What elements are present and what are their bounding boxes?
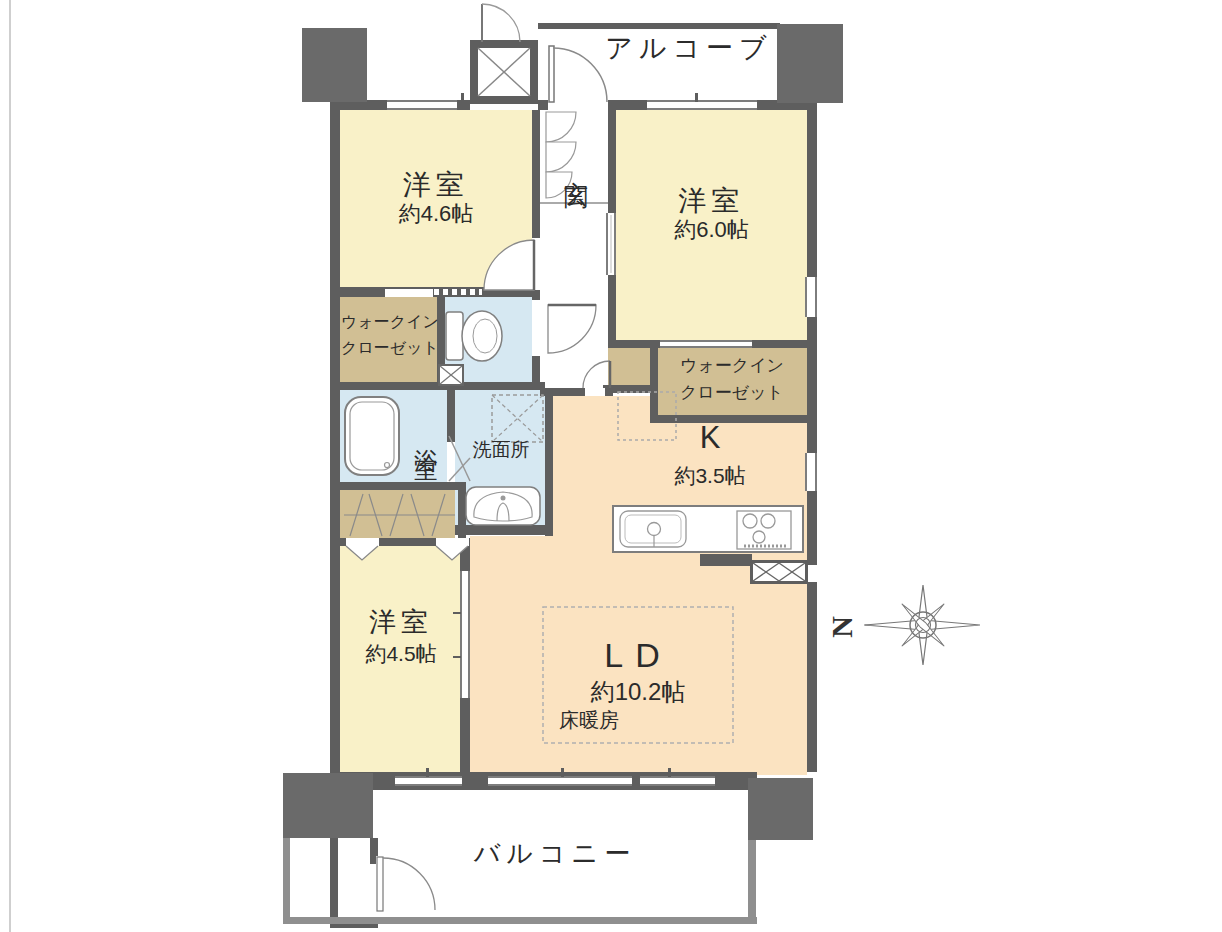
window-tick (426, 768, 429, 777)
wic-right-label: ウォークインクローゼット (658, 352, 806, 406)
room45-label: 洋室 (340, 604, 462, 640)
room45-size: 約4.5帖 (340, 640, 462, 668)
wall (330, 838, 338, 928)
window (395, 776, 462, 786)
balcony-rail (283, 838, 290, 924)
door-opening (436, 538, 469, 546)
balcony-label: バルコニー (462, 836, 648, 871)
wall (340, 482, 462, 490)
window (640, 776, 715, 786)
wic-left-label: ウォークインクローゼット (341, 309, 437, 362)
window (387, 100, 457, 110)
wall (807, 110, 817, 565)
room60-size: 約6.0帖 (620, 215, 803, 245)
window (488, 776, 632, 786)
window (647, 100, 757, 110)
door-opening (376, 856, 384, 912)
wall (807, 582, 817, 772)
wic-right-line1: ウォークイン (658, 352, 806, 379)
balcony-rail (283, 917, 757, 924)
door-opening (532, 300, 540, 356)
wic-left-line1: ウォークイン (341, 309, 437, 335)
window-tick (668, 768, 671, 777)
door-opening (346, 538, 379, 546)
door-opening (385, 289, 433, 297)
living-dining-left (470, 536, 553, 775)
wall (458, 482, 466, 538)
wall (330, 287, 537, 297)
ld-label: LD (553, 636, 723, 675)
kitchen-size: 約3.5帖 (645, 462, 775, 490)
pillar (283, 773, 373, 838)
wall (538, 23, 780, 29)
pipe-space-kitchen (750, 560, 808, 584)
wic-right-line2: クローゼット (658, 379, 806, 406)
alcove-label: アルコーブ (596, 30, 782, 66)
room46-size: 約4.6帖 (350, 199, 522, 229)
wall (447, 390, 455, 442)
window (660, 340, 752, 348)
image-left-border (9, 0, 11, 932)
pillar (302, 28, 367, 102)
floor-heating-label: 床暖房 (544, 707, 634, 734)
door-opening (585, 388, 605, 396)
compass-north-label: N (825, 616, 858, 638)
entrance-label: 玄関 (560, 122, 592, 212)
hall-ld-door (583, 361, 610, 388)
closet-room45 (340, 490, 455, 538)
toilet-door (548, 305, 596, 353)
wic-left-line2: クローゼット (341, 335, 437, 361)
window (606, 213, 616, 275)
door-opening (548, 100, 608, 110)
pillar (748, 778, 813, 840)
window-tick (695, 93, 698, 102)
window-tick (561, 768, 564, 777)
kitchen-label: K (645, 420, 775, 456)
ld-size: 約10.2帖 (553, 676, 723, 708)
washroom-label: 洗面所 (455, 437, 547, 463)
window (805, 453, 817, 491)
wall (540, 388, 588, 396)
wall (455, 525, 553, 535)
window-tick (461, 93, 464, 102)
pipe-space-small (438, 364, 464, 386)
wall (650, 348, 658, 415)
wall (700, 554, 752, 566)
balcony-door (377, 857, 435, 911)
wall (330, 110, 340, 775)
compass-rose-icon: N (825, 583, 980, 668)
pillar (777, 24, 843, 103)
floor-plan: アルコーブ 玄関 洋室 約4.6帖 洋室 約6.0帖 ウォークインクローゼット … (0, 0, 1222, 932)
bathroom-label: 浴室 (410, 392, 442, 482)
wall (460, 698, 470, 775)
door-opening (532, 238, 540, 290)
wall (545, 390, 553, 536)
balcony-rail (748, 840, 756, 924)
meter-box-inner (478, 48, 530, 96)
window (805, 277, 817, 317)
